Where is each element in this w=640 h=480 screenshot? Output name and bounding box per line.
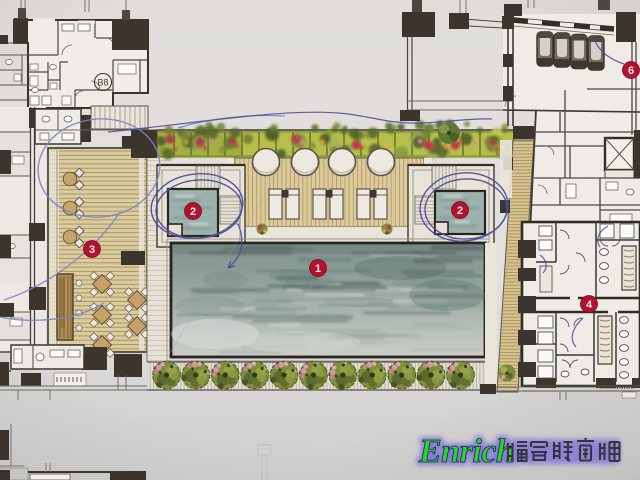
svg-text:6: 6	[628, 65, 634, 77]
svg-text:1: 1	[315, 263, 321, 275]
svg-text:Enrich: Enrich	[418, 433, 514, 470]
svg-text:2: 2	[457, 205, 463, 217]
svg-text:3: 3	[89, 244, 95, 256]
svg-text:4: 4	[586, 299, 593, 311]
svg-text:2: 2	[190, 206, 196, 218]
